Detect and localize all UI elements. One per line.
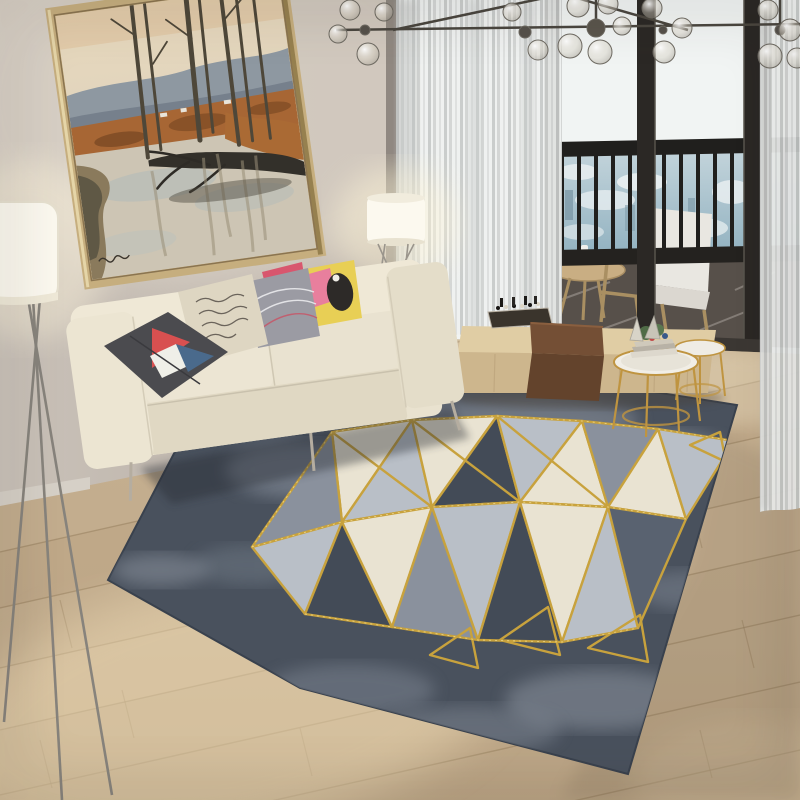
landscape-painting [45,0,326,290]
living-room-photo [0,0,800,800]
painting-canvas [55,0,316,280]
leather-runner [526,322,604,401]
scene-canvas [0,0,800,800]
door-frame-center [637,0,655,344]
table-lamp-shade [367,197,425,243]
